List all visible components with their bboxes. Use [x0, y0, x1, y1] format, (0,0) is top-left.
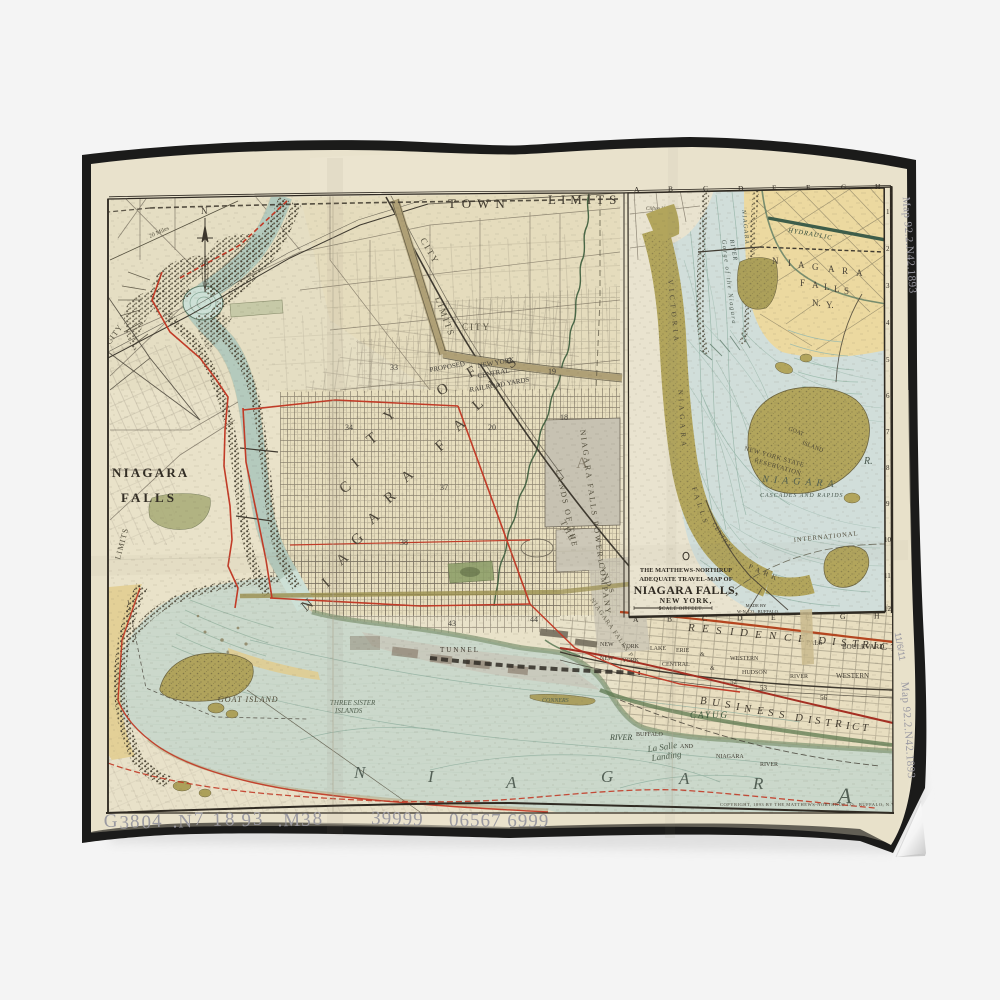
svg-text:06567 6999: 06567 6999 — [449, 810, 549, 832]
svg-text:39999: 39999 — [371, 808, 424, 830]
